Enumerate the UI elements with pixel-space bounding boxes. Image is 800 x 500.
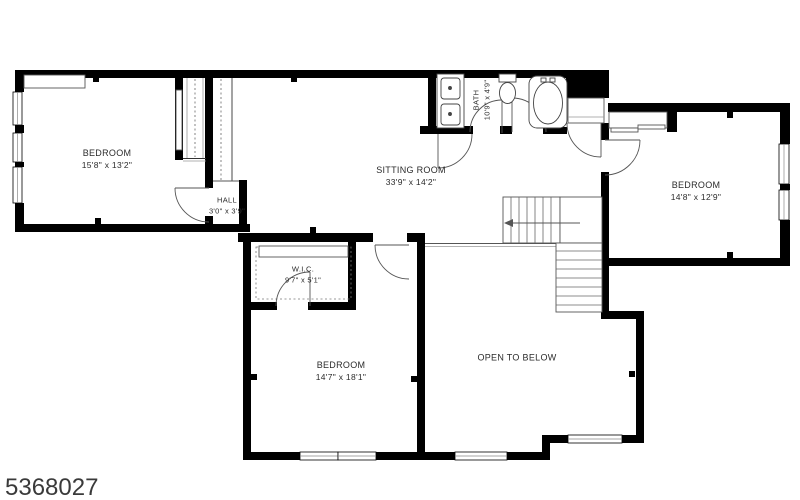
room-name: BEDROOM [316,359,367,372]
room-name: HALL [209,196,245,207]
bathtub [529,76,567,128]
wall-divider [417,233,425,460]
tub-faucet [550,78,555,82]
listing-id: 5368027 [5,474,98,500]
wall-bath-left [428,70,436,134]
stair-lower-run [556,243,602,312]
wall-bedroom2-top [608,103,790,112]
room-name: BEDROOM [82,147,133,160]
wall-left-seg [15,125,24,133]
sink-drain [449,113,452,116]
room-label-hall: HALL 3'0" x 3'9" [209,196,245,217]
room-name: BEDROOM [671,179,722,192]
window [13,167,22,203]
wall-wic-right [348,242,356,310]
built-in-shelf [24,75,85,88]
closet-slider-door [638,125,665,129]
room-dims: 15'8" x 13'2" [82,159,133,171]
wall-step-vertical [542,435,550,460]
closet-left [183,78,206,161]
wall-bedroom2-bottom [601,258,790,266]
wall-closet-mid [205,70,213,188]
room-label-open-to-below: OPEN TO BELOW [477,352,556,365]
door-linen-closet [567,123,601,157]
wall-open-bottom-a [425,452,455,460]
room-dims: 3'0" x 3'9" [209,206,245,217]
room-dims: 9'7" x 5'1" [285,275,321,286]
wall-left-seg [15,162,24,167]
sink-drain [449,87,452,90]
tub-faucet [541,78,546,82]
room-dims: 33'9" x 14'2" [376,176,446,188]
window [13,92,22,125]
door-bedroom-right [605,140,640,175]
window [779,144,789,184]
toilet-tank [499,74,516,82]
room-name: BATH [472,80,483,121]
wall-mid-right-a [601,123,609,140]
door-bedroom-bottom [375,245,409,279]
room-label-bath: BATH 10'9" x 4'9" [472,80,493,121]
wall-bedroom3-bottom-a [243,452,300,460]
room-label-sitting-room: SITTING ROOM 33'9" x 14'2" [376,164,446,188]
window [568,435,622,443]
wall-bedroom3-left [243,242,251,460]
walls [15,70,790,460]
closet-right [213,78,239,181]
window [13,133,22,162]
window [779,190,789,220]
open-below-edge [425,244,556,247]
wall-top [15,70,608,78]
room-label-bedroom-right: BEDROOM 14'8" x 12'9" [671,179,722,203]
wall-bottom-left [15,224,250,232]
closet-slider-door [611,128,638,132]
wall-bedroom2-right-b [780,184,790,190]
room-dims: 14'7" x 18'1" [316,371,367,383]
vanity-double-sink [437,74,464,128]
wic-shelf [259,246,348,257]
wall-pocket-panel [176,90,182,150]
room-name: OPEN TO BELOW [477,352,556,365]
room-label-bedroom-left: BEDROOM 15'8" x 13'2" [82,147,133,171]
wall-wic-bottom-b [308,302,356,310]
door-bedroom-left [175,188,209,222]
wall-hall-left-lower [205,216,213,232]
window [455,452,507,460]
window [338,452,376,460]
room-label-bedroom-bottom: BEDROOM 14'7" x 18'1" [316,359,367,383]
room-label-wic: W.I.C. 9'7" x 5'1" [285,265,321,286]
window [300,452,338,460]
wall-left-seg [15,203,24,224]
stair-landing [560,197,602,243]
room-dims: 10'9" x 4'9" [482,80,493,121]
floor-plan-drawing [0,0,800,500]
wall-bedroom2-right-a [780,103,790,144]
linen-closet [568,98,604,123]
wall-bedroom3-bottom-b [375,452,425,460]
wall-right-lower [636,311,644,443]
floor-plan: BEDROOM 15'8" x 13'2" HALL 3'0" x 3'9" S… [0,0,800,500]
staircase [503,197,602,312]
wall-wic-bottom-a [243,302,277,310]
wall-solid-block [566,70,609,98]
wall-left-seg [15,70,24,92]
room-name: W.I.C. [285,265,321,276]
wall-sitting-bottom-a [238,233,373,242]
toilet [499,74,516,104]
room-name: SITTING ROOM [376,164,446,177]
wall-open-bottom-right-a [550,435,568,443]
bedroom2-closet [609,112,667,132]
toilet-bowl [500,83,516,104]
wall-closet-stub [667,110,677,132]
room-dims: 14'8" x 12'9" [671,191,722,203]
